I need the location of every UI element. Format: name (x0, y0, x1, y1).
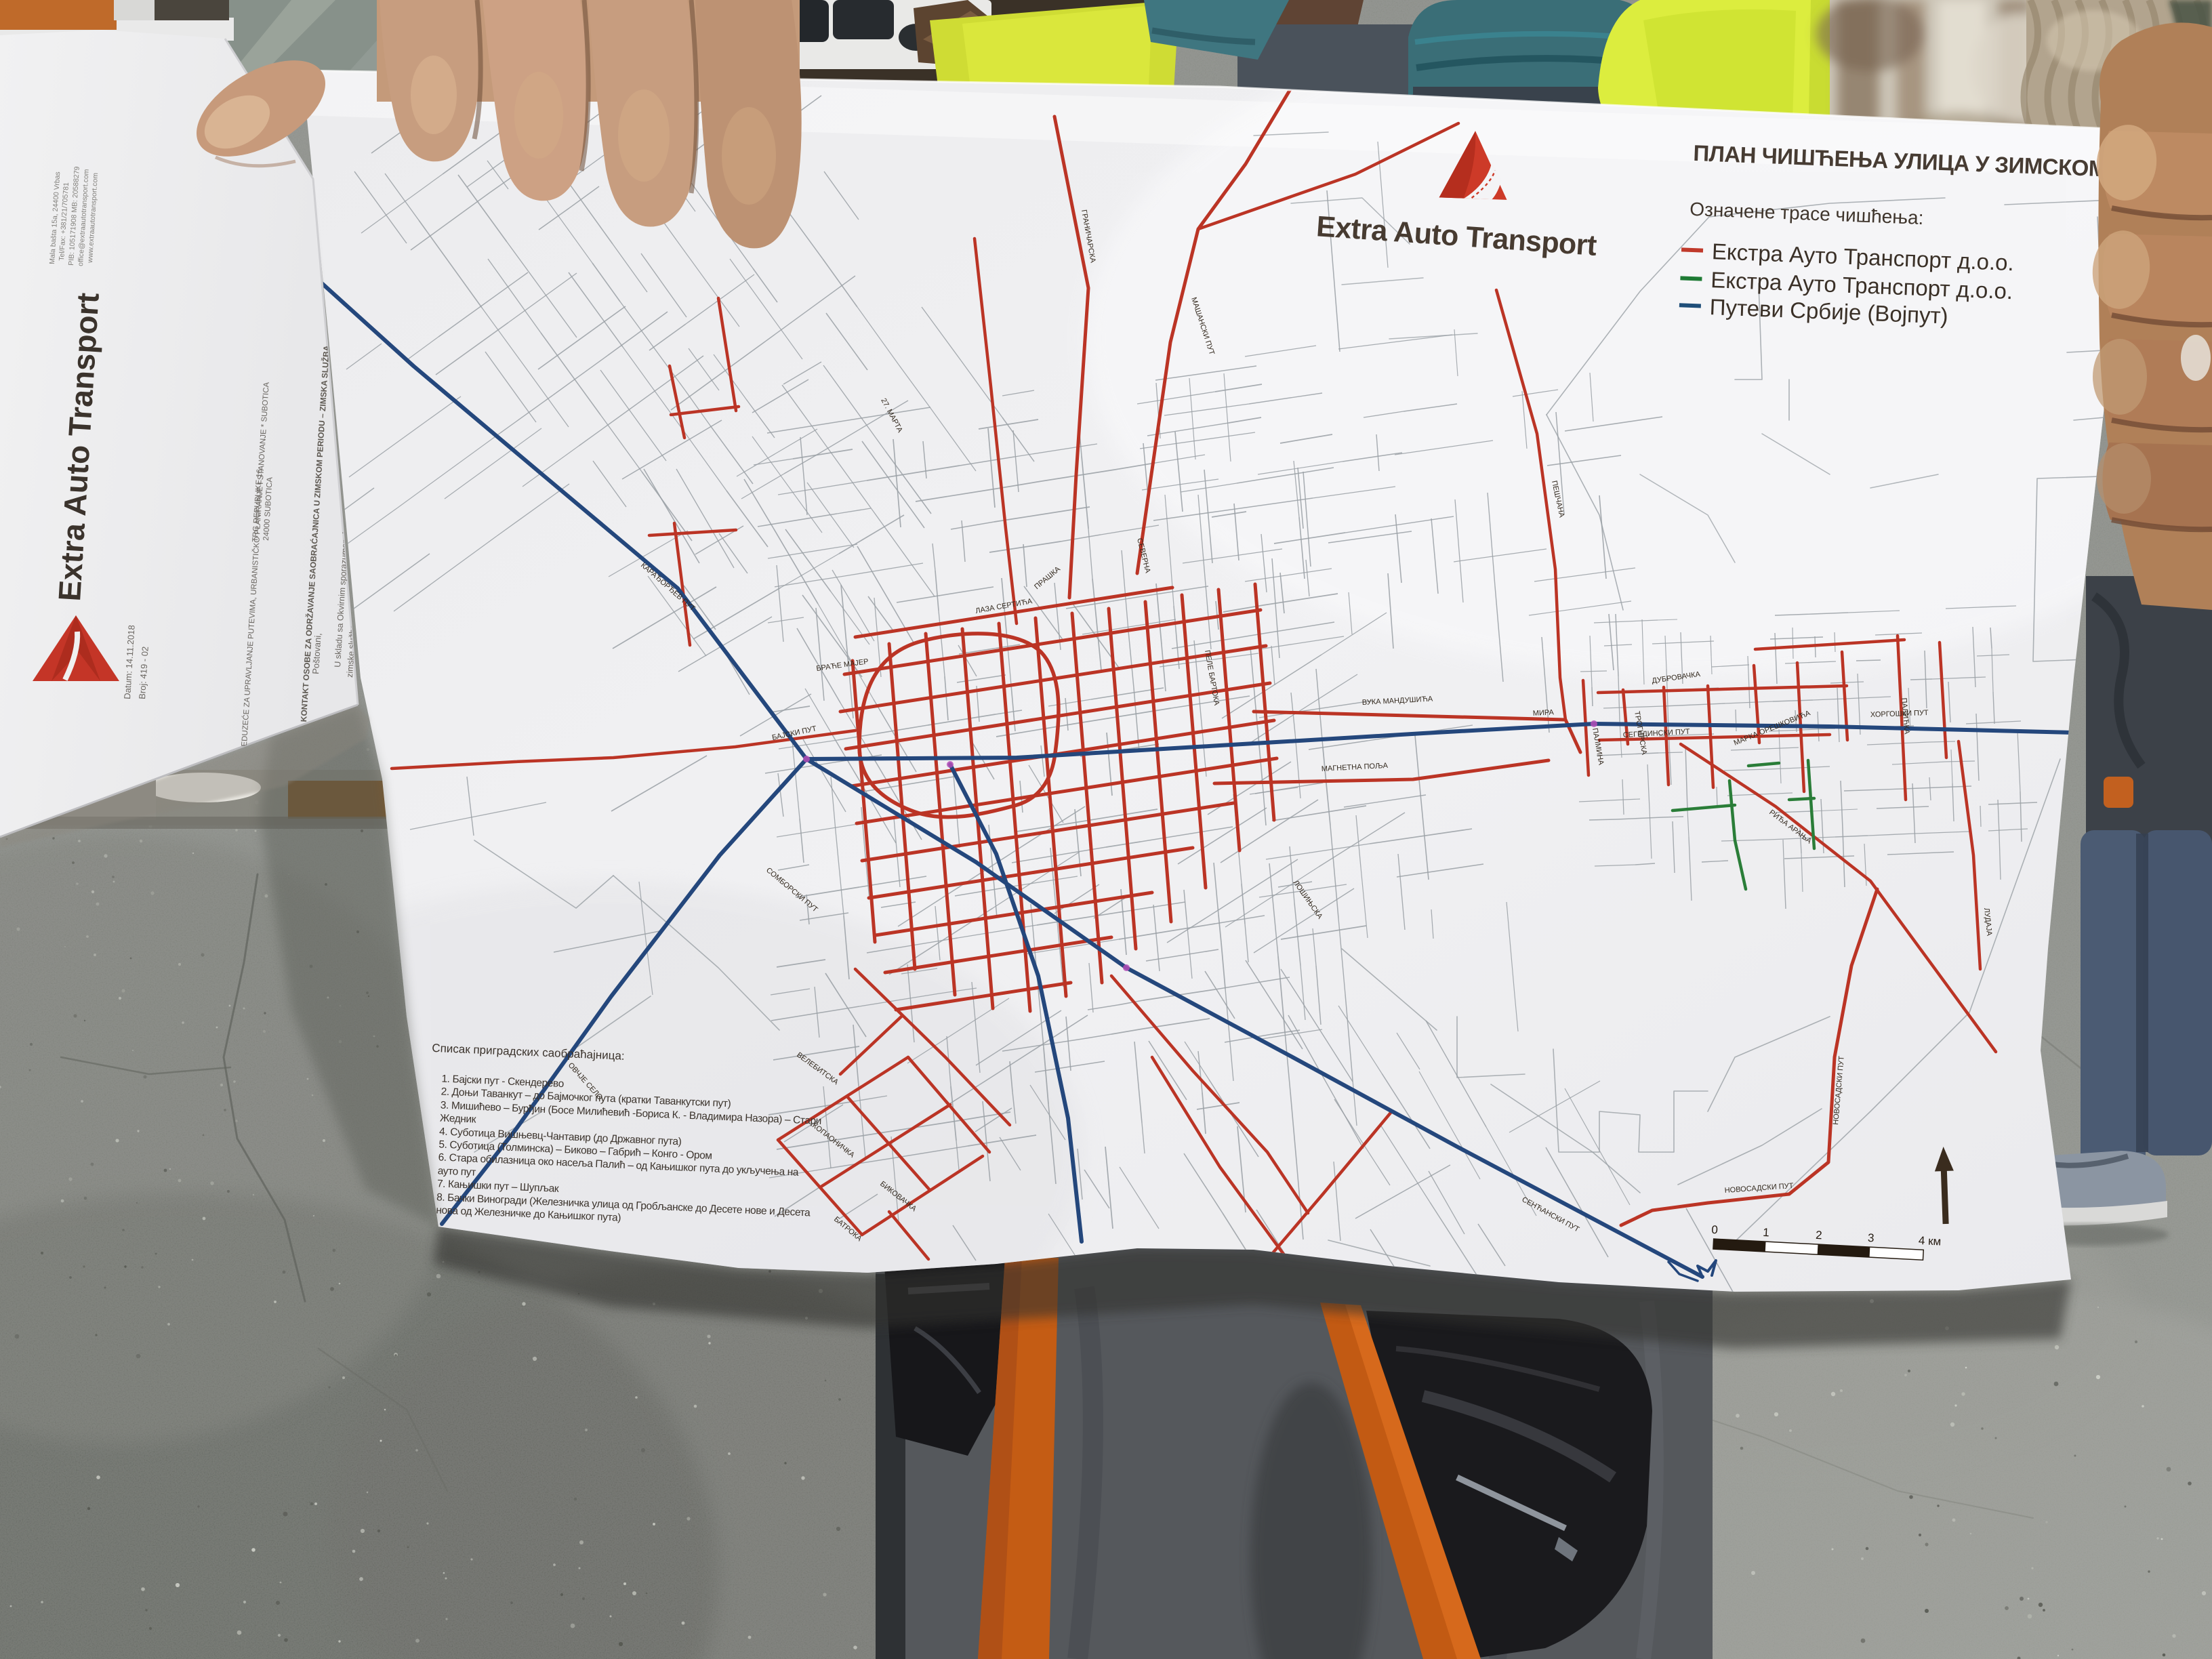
svg-text:2: 2 (1816, 1229, 1822, 1242)
svg-text:МИРА: МИРА (1533, 708, 1555, 718)
svg-text:1: 1 (1763, 1226, 1769, 1239)
svg-text:4 км: 4 км (1918, 1234, 1941, 1248)
svg-text:ауто пут: ауто пут (437, 1165, 476, 1178)
svg-text:0: 0 (1711, 1223, 1718, 1236)
svg-text:3: 3 (1868, 1231, 1875, 1244)
svg-text:Жедник: Жедник (440, 1112, 476, 1125)
